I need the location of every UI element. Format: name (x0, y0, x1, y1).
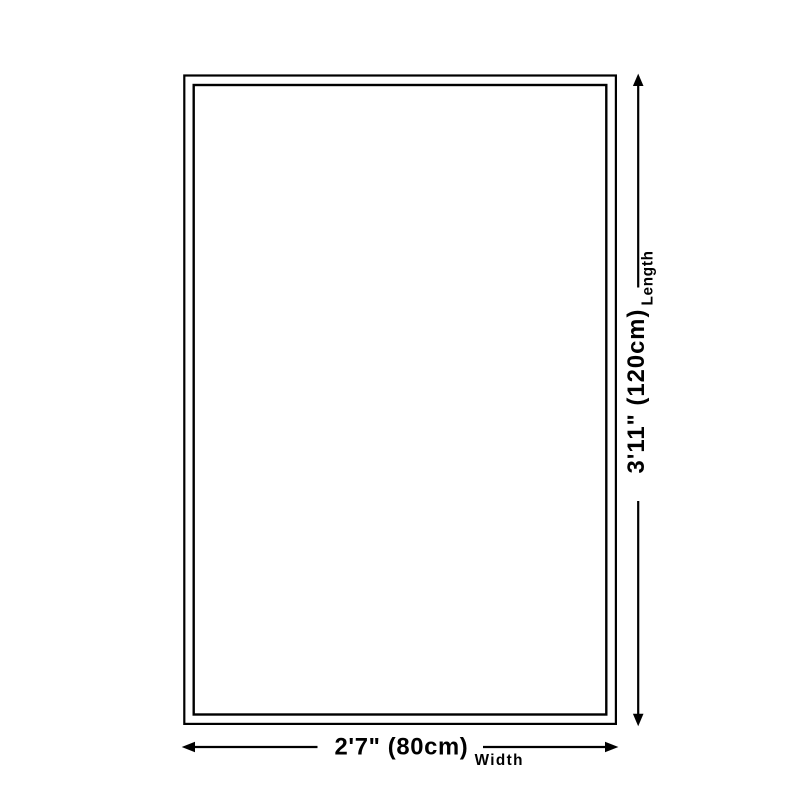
svg-text:3'11" (120cm): 3'11" (120cm) (623, 309, 650, 474)
svg-text:Length: Length (640, 250, 657, 305)
svg-text:2'7" (80cm): 2'7" (80cm) (335, 734, 469, 761)
svg-text:Width: Width (475, 752, 524, 769)
